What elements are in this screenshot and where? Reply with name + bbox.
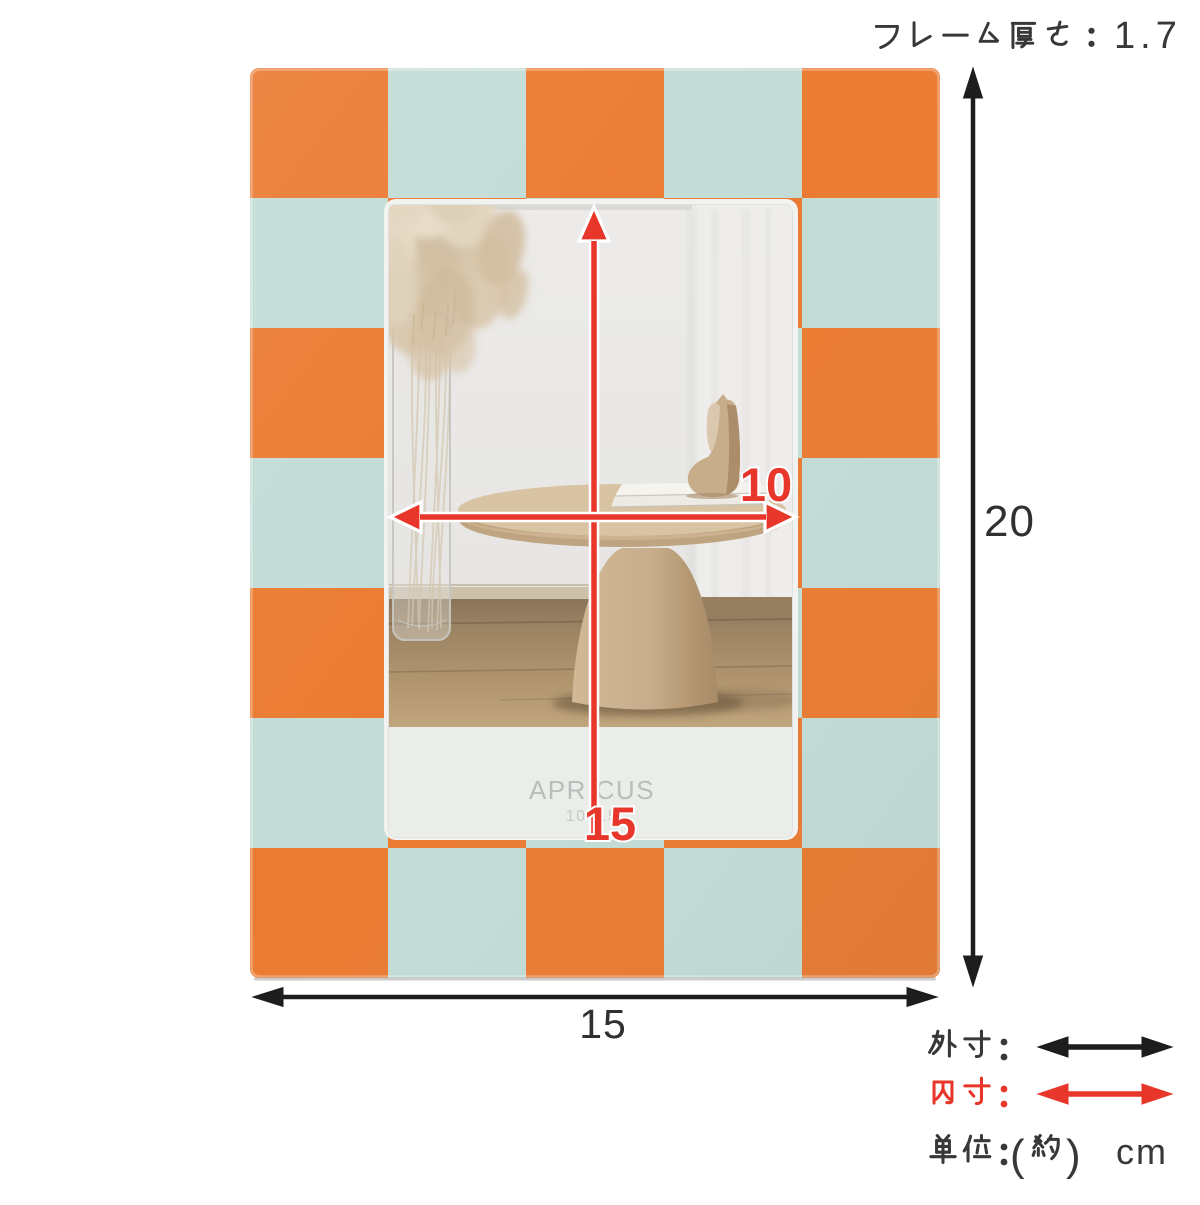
svg-text:20: 20 xyxy=(984,497,1035,546)
svg-text:15: 15 xyxy=(584,797,636,850)
svg-text:cm: cm xyxy=(1116,1131,1168,1172)
svg-text:(: ( xyxy=(1010,1131,1025,1180)
svg-text:10: 10 xyxy=(740,458,792,511)
svg-text:1.7: 1.7 xyxy=(1114,15,1182,57)
svg-text:15: 15 xyxy=(579,1001,627,1047)
svg-text:): ) xyxy=(1066,1131,1081,1180)
